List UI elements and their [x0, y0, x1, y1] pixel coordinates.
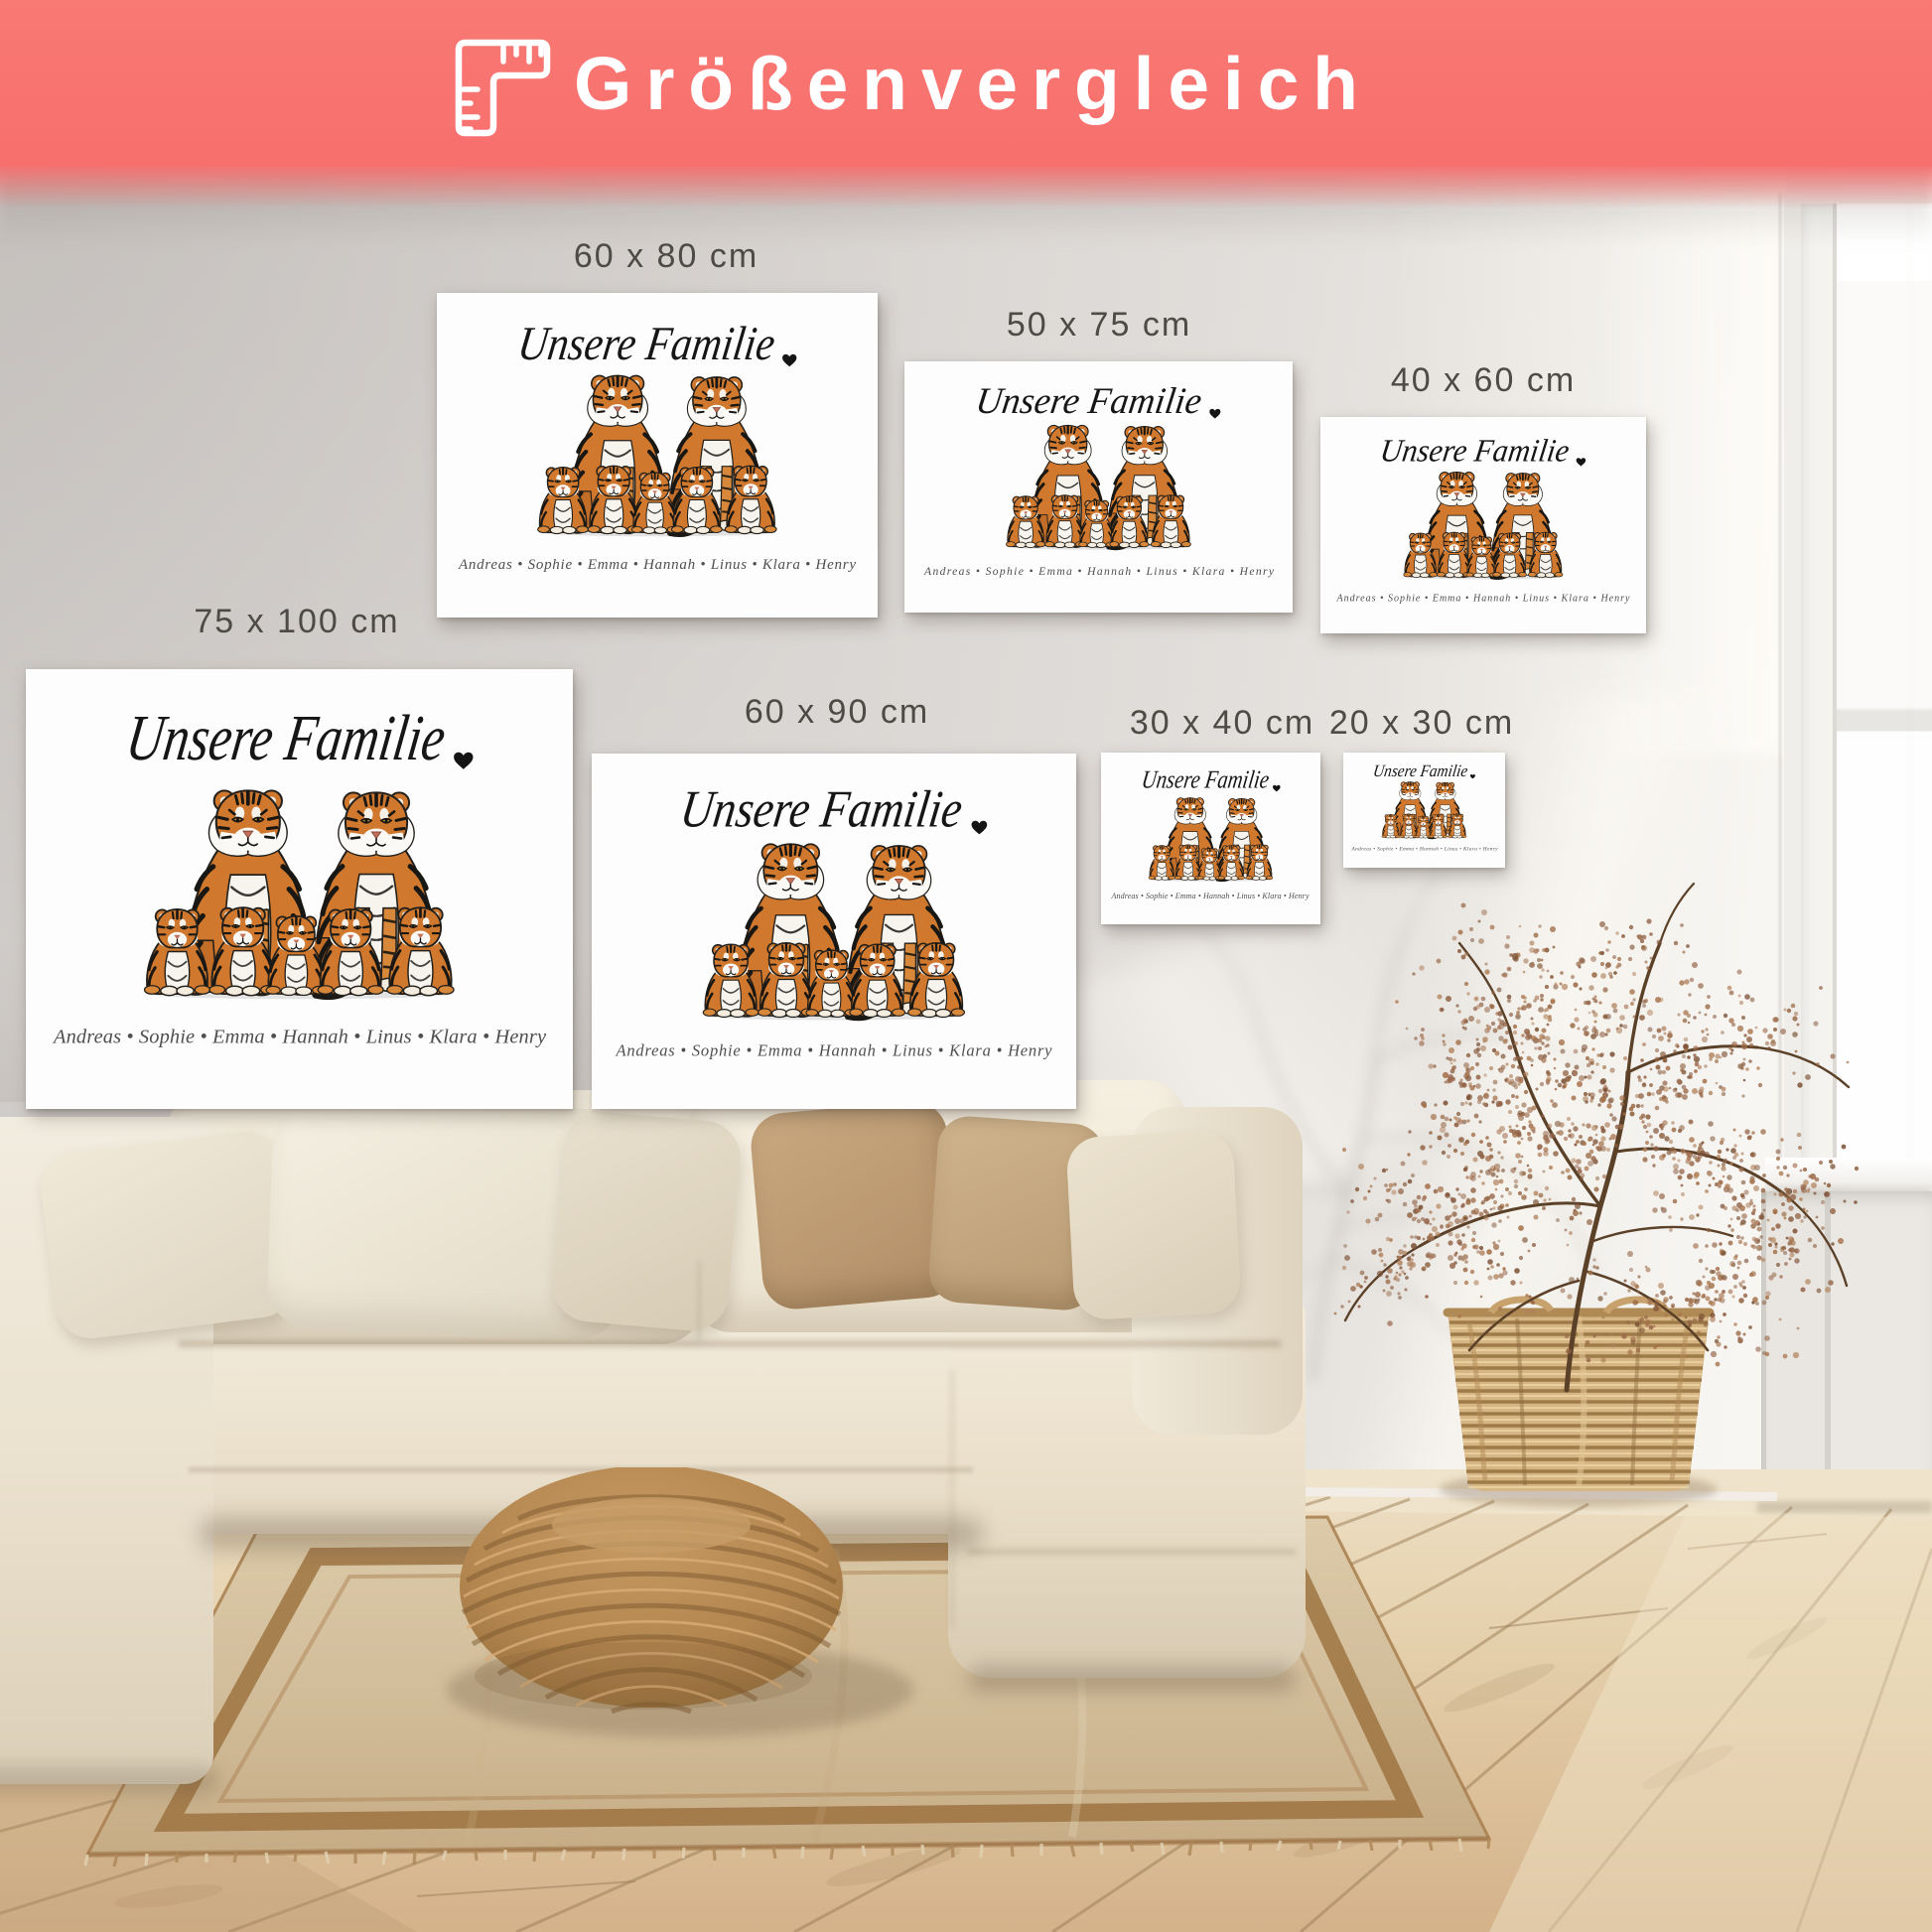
svg-text:Andreas • Sophie • Emma • Hann: Andreas • Sophie • Emma • Hannah • Linus… [52, 1027, 547, 1048]
svg-text:Andreas • Sophie • Emma • Hann: Andreas • Sophie • Emma • Hannah • Linus… [1336, 593, 1631, 604]
svg-text:Unsere Familie: Unsere Familie [1140, 765, 1271, 794]
svg-text:Andreas • Sophie • Emma • Hann: Andreas • Sophie • Emma • Hannah • Linus… [458, 557, 856, 573]
svg-text:Andreas • Sophie • Emma • Hann: Andreas • Sophie • Emma • Hannah • Linus… [616, 1040, 1053, 1059]
svg-text:Unsere Familie: Unsere Familie [973, 381, 1204, 422]
svg-text:Unsere Familie: Unsere Familie [122, 702, 450, 774]
svg-text:Unsere Familie: Unsere Familie [1378, 434, 1572, 470]
svg-text:Unsere Familie: Unsere Familie [1372, 761, 1469, 780]
svg-text:Andreas • Sophie • Emma • Hann: Andreas • Sophie • Emma • Hannah • Linus… [1111, 892, 1310, 900]
svg-text:Andreas • Sophie • Emma • Hann: Andreas • Sophie • Emma • Hannah • Linus… [923, 565, 1275, 578]
svg-text:Andreas • Sophie • Emma • Hann: Andreas • Sophie • Emma • Hannah • Linus… [1351, 847, 1499, 853]
svg-text:Unsere Familie: Unsere Familie [514, 317, 778, 370]
svg-text:Unsere Familie: Unsere Familie [677, 780, 966, 839]
svg-text:Größenvergleich: Größenvergleich [574, 42, 1358, 125]
